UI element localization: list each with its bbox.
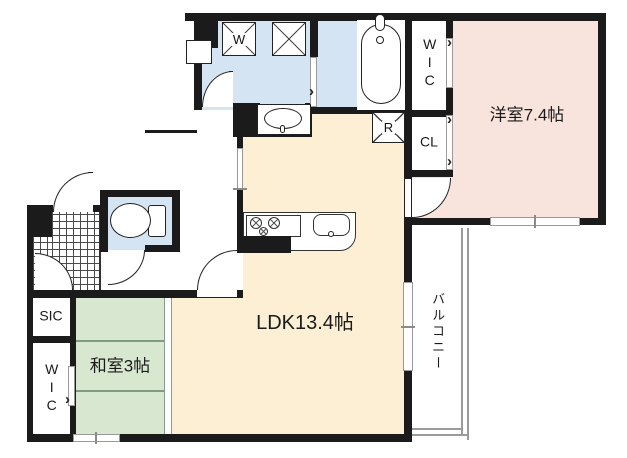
refrigerator-space: R [372,112,405,143]
sliding-door [164,298,172,435]
bathtub-drain [376,36,384,44]
tatami-line [75,390,165,392]
wall [100,190,180,197]
shoe-closet-label: SIC [39,308,62,323]
sink-faucet [328,231,334,237]
door-swing-arc-hall-ldk [197,250,237,290]
balcony-rail [467,228,469,440]
balcony-rail [412,434,469,436]
window-tick [401,326,415,328]
wall [404,13,412,178]
wall [100,190,108,252]
wall [27,205,33,442]
tatami-line [75,340,165,342]
appliance-space [272,22,306,56]
door-swing-arc-entrance [53,172,93,212]
door-direction-marker [309,84,314,99]
ldk-label: LDK13.4帖 [256,312,354,334]
pipe-space-box [186,40,212,64]
wall [598,13,606,225]
wall [310,13,318,57]
japanese-room-label: 和室3帖 [90,358,150,377]
wall [33,207,52,237]
wall [404,371,412,442]
western-room-label: 洋室7.4帖 [490,107,565,126]
wall [33,336,75,343]
door-direction-marker [447,35,452,50]
balcony-rail [412,428,463,430]
washing-machine-label: W [231,33,247,46]
bathtub-faucet [375,14,385,31]
door-swing-arc-toilet [108,250,145,285]
kitchen-counter-end-wall [237,236,291,253]
door-direction-marker [65,392,70,407]
door-threshold [197,289,237,298]
door-direction-marker [447,154,452,169]
door-direction-marker [447,112,452,127]
window-tick [233,188,247,190]
balcony-rail [461,228,463,434]
stove-burner [268,217,280,229]
stove-burner [259,227,268,236]
wall [145,245,180,252]
window-tick [534,215,536,228]
ldk-floor [243,135,409,441]
opening-strip [237,148,243,190]
toilet-bowl [110,203,151,238]
closet-label: CL [420,134,438,149]
wall [93,205,108,212]
washing-machine: W [222,22,256,56]
door-leaf [404,178,412,218]
wall [172,190,180,252]
floor-plan: W R LDK13.4帖 洋室7.4帖 和室3帖 WIC CL SIC WIC … [0,0,627,458]
balcony-label: バルコニー [430,292,444,372]
wic-lower-label: WIC [43,361,58,415]
wall [145,130,197,133]
wall [404,216,412,282]
wic-upper-label: WIC [421,36,436,90]
ldk-floor-lower [166,295,246,441]
window-tick [95,432,97,444]
washbasin-tap [280,125,285,133]
refrigerator-label: R [382,121,395,134]
